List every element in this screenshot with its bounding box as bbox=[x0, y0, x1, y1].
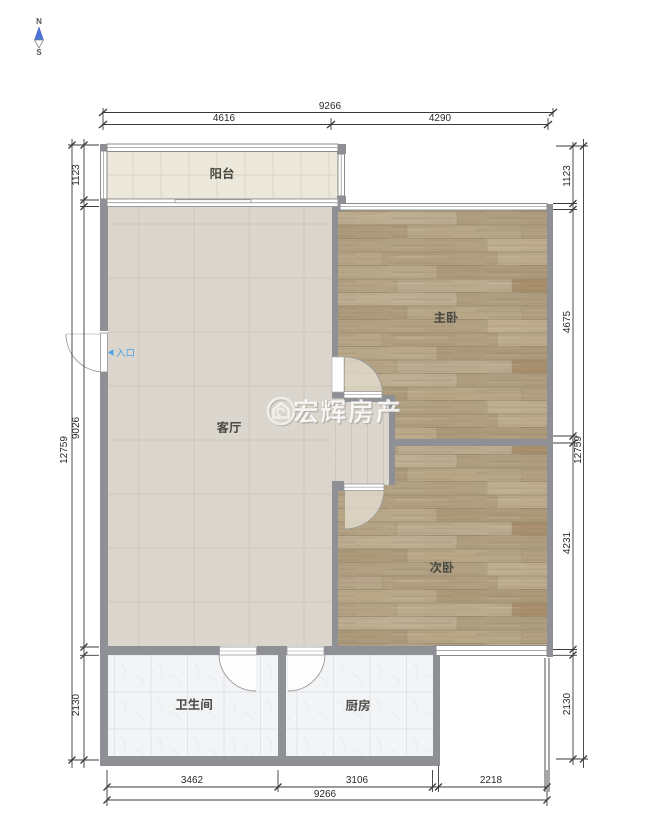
svg-text:9026: 9026 bbox=[71, 416, 82, 439]
svg-text:12759: 12759 bbox=[573, 436, 584, 464]
svg-text:S: S bbox=[36, 48, 42, 57]
svg-text:2130: 2130 bbox=[71, 693, 82, 716]
svg-text:2130: 2130 bbox=[562, 692, 573, 715]
svg-text:4675: 4675 bbox=[562, 310, 573, 333]
svg-text:2218: 2218 bbox=[480, 775, 503, 786]
svg-text:3106: 3106 bbox=[346, 775, 369, 786]
svg-text:4616: 4616 bbox=[213, 113, 236, 124]
svg-text:9266: 9266 bbox=[319, 101, 342, 112]
svg-text:4290: 4290 bbox=[429, 113, 452, 124]
svg-text:1123: 1123 bbox=[562, 165, 573, 187]
svg-text:N: N bbox=[36, 17, 42, 26]
svg-text:12759: 12759 bbox=[59, 436, 70, 464]
svg-text:3462: 3462 bbox=[181, 775, 204, 786]
svg-text:4231: 4231 bbox=[562, 531, 573, 554]
svg-text:9266: 9266 bbox=[314, 789, 337, 800]
svg-text:1123: 1123 bbox=[71, 164, 82, 186]
